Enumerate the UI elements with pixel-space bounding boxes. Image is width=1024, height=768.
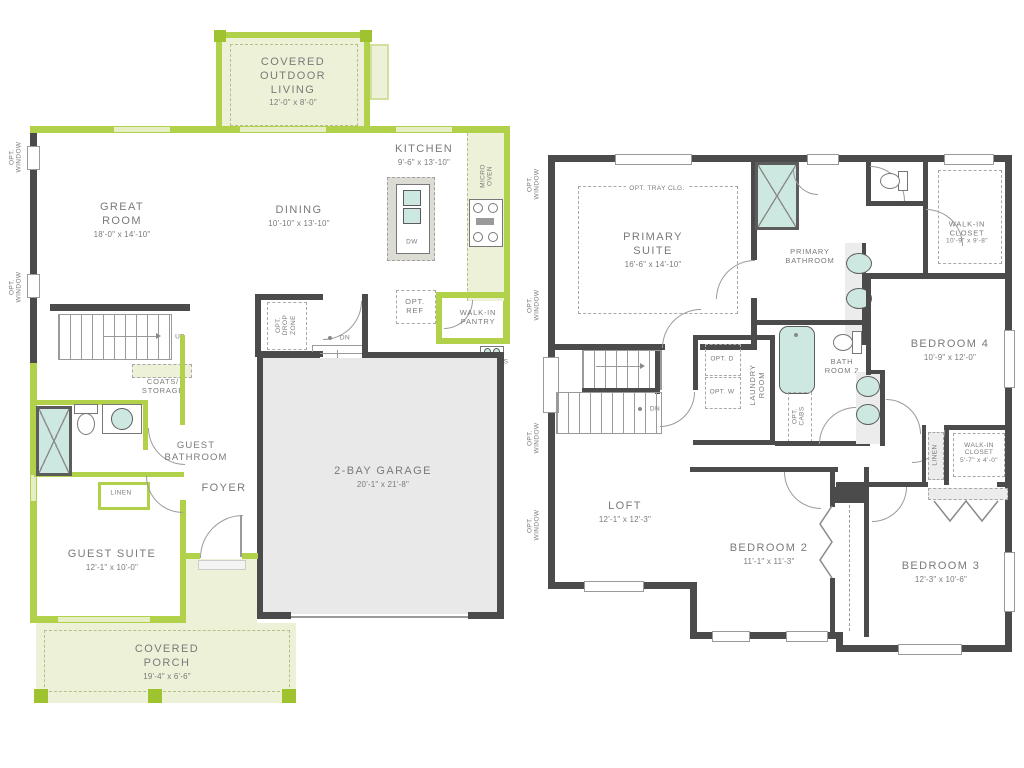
window <box>114 127 170 132</box>
wall <box>770 335 775 445</box>
walk-in-closet-1-label: WALK-IN CLOSET 10'-9" x 9'-8" <box>934 219 1000 244</box>
stair-arrow <box>596 366 640 367</box>
stairs-lower-run <box>556 392 662 434</box>
toilet-bowl <box>833 334 853 351</box>
wall <box>50 304 190 311</box>
wall <box>143 400 148 450</box>
stair-arrow <box>104 336 156 337</box>
foyer-label: FOYER <box>184 482 264 496</box>
guest-suite-label: GUEST SUITE 12'-1" x 10'-0" <box>47 548 177 572</box>
wall <box>866 279 871 375</box>
chimney-bump <box>370 44 389 100</box>
window <box>944 154 994 165</box>
dishwasher-label: DW <box>397 238 427 245</box>
wall <box>503 126 510 338</box>
dn-label-floor1: DN <box>333 334 357 341</box>
wall <box>756 320 866 325</box>
closet-dashed-outline <box>938 170 1002 264</box>
primary-suite-label: PRIMARY SUITE 16'-6" x 14'-10" <box>611 231 695 269</box>
closet-header <box>830 487 869 503</box>
wall <box>997 482 1012 487</box>
wall <box>362 294 368 358</box>
wall <box>216 32 222 128</box>
burner <box>473 203 483 213</box>
guest-suite-door-arc <box>146 476 183 513</box>
stair-arrowhead <box>156 333 161 339</box>
linen-label-floor1: LINEN <box>101 489 141 496</box>
wall <box>257 352 320 358</box>
walk-in-closet-2-label: WALK-IN CLOSET 5'-7" x 4'-0" <box>951 442 1007 464</box>
wall <box>216 32 370 38</box>
window <box>240 127 326 132</box>
bath2-door-arc <box>819 407 856 444</box>
wall <box>362 352 503 358</box>
front-door-arc <box>200 515 243 558</box>
bedroom4-door-arc <box>886 399 921 434</box>
opt-w-label: OPT. W <box>707 388 737 395</box>
window <box>27 146 40 170</box>
bedroom-4-label: BEDROOM 4 10'-9" x 12'-0" <box>890 338 1010 362</box>
tub-drain <box>794 333 798 337</box>
stair-arrowhead <box>640 363 645 369</box>
wall <box>830 578 835 637</box>
post <box>214 30 226 42</box>
great-room-label: GREAT ROOM 18'-0" x 14'-10" <box>85 201 159 239</box>
window <box>615 154 692 165</box>
dn-dot <box>638 407 642 411</box>
opt-d-label: OPT. D <box>707 355 737 362</box>
bifold-door <box>933 499 1001 523</box>
wall <box>944 425 1012 430</box>
dn-dot <box>328 336 332 340</box>
wall <box>693 440 775 445</box>
kitchen-label: KITCHEN 9'-6" x 13'-10" <box>369 143 479 167</box>
porch-post <box>148 689 162 703</box>
post <box>360 30 372 42</box>
toilet-bowl <box>77 413 95 435</box>
garage-door <box>291 616 468 618</box>
opt-tray-label: OPT. TRAY CLG. <box>602 177 712 195</box>
kitchen-sink <box>403 190 421 206</box>
outdoor-living-label: COVERED OUTDOOR LIVING 12'-0" x 8'-0" <box>245 56 341 108</box>
wall <box>436 292 510 298</box>
toilet-bowl <box>880 173 900 189</box>
burner <box>488 232 498 242</box>
wall <box>436 292 442 344</box>
window <box>786 631 828 642</box>
dn-label-floor2: DN <box>643 405 667 412</box>
bedroom2-door-arc <box>784 472 821 509</box>
wall <box>866 201 928 206</box>
kitchen-sink <box>403 208 421 224</box>
bedroom3-door-arc <box>872 487 907 522</box>
wall <box>922 425 926 485</box>
porch-post <box>34 689 48 703</box>
entry-stoop <box>198 560 246 570</box>
wall <box>255 294 261 357</box>
bifold-door <box>818 505 836 579</box>
wall <box>255 294 323 300</box>
porch-post <box>282 689 296 703</box>
dining-label: DINING 10'-10" x 13'-10" <box>244 204 354 228</box>
sink <box>846 253 872 274</box>
shower <box>36 406 72 476</box>
wall <box>690 582 697 639</box>
opt-ref-label: OPT. REF <box>400 297 430 315</box>
loft-label: LOFT 12'-1" x 12'-3" <box>570 500 680 524</box>
sink <box>856 376 880 397</box>
burner <box>488 203 498 213</box>
stairs-up <box>58 314 172 360</box>
wall <box>436 338 510 344</box>
window <box>58 617 150 622</box>
burner <box>473 232 483 242</box>
wall <box>866 273 1012 279</box>
bedroom-3-label: BEDROOM 3 12'-3" x 10'-6" <box>881 560 1001 584</box>
bedroom-2-label: BEDROOM 2 11'-1" x 11'-3" <box>709 542 829 566</box>
range-center <box>476 218 494 225</box>
window <box>898 644 962 655</box>
walk-in-pantry-label: WALK-IN PANTRY <box>447 308 509 326</box>
front-door-leaf <box>240 515 242 557</box>
wall <box>497 352 504 619</box>
garage-label: 2-BAY GARAGE 20'-1" x 21'-8" <box>283 465 483 489</box>
window <box>396 127 452 132</box>
wall <box>693 335 775 340</box>
sink <box>111 408 133 430</box>
window <box>712 631 750 642</box>
wall <box>880 370 885 446</box>
floor-plan-canvas: COVERED OUTDOOR LIVING 12'-0" x 8'-0" OP… <box>0 0 1024 768</box>
window <box>807 154 839 165</box>
window <box>584 581 644 592</box>
wall <box>180 335 185 425</box>
toilet-tank <box>852 331 862 354</box>
stairs-upper-run <box>582 350 662 390</box>
wall <box>693 335 698 390</box>
wall <box>468 612 504 619</box>
covered-porch-label: COVERED PORCH 19'-4" x 6'-6" <box>121 643 213 681</box>
primary-bathroom-label: PRIMARY BATHROOM <box>768 247 852 265</box>
wall <box>257 612 291 619</box>
sink <box>856 404 880 425</box>
window <box>1004 552 1015 612</box>
closet-rod <box>849 505 850 631</box>
guest-bathroom-label: GUEST BATHROOM <box>154 440 238 464</box>
window <box>31 475 36 501</box>
window <box>27 274 40 298</box>
